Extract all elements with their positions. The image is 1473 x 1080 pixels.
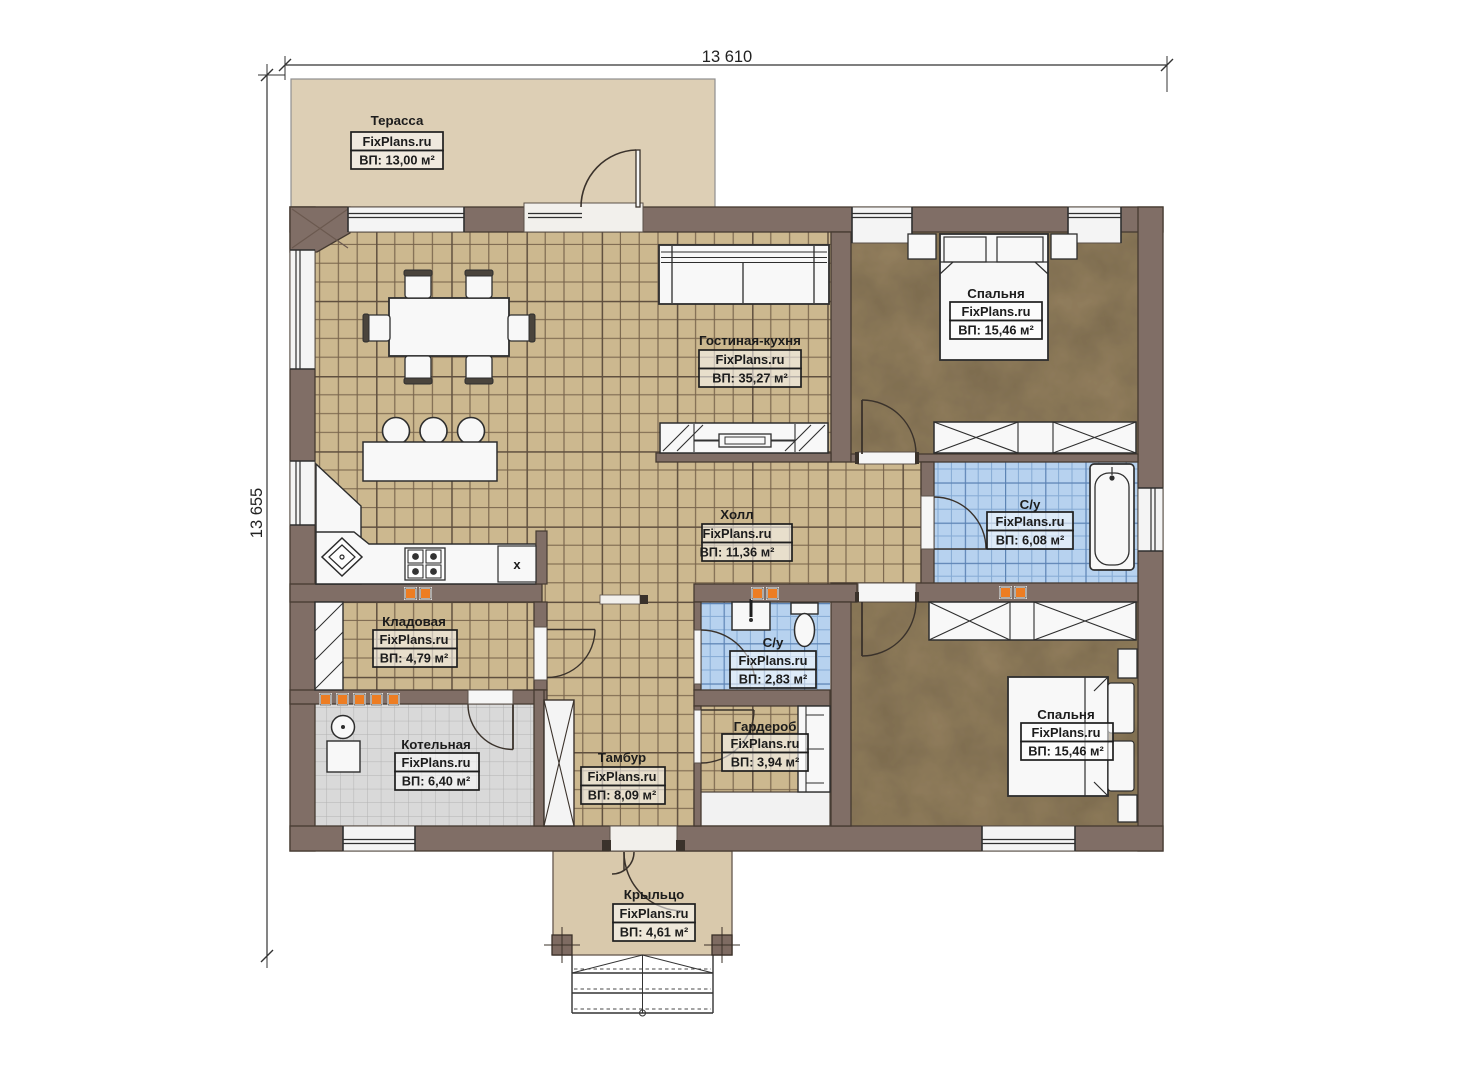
svg-text:FixPlans.ru: FixPlans.ru <box>588 769 657 784</box>
svg-text:FixPlans.ru: FixPlans.ru <box>363 134 432 149</box>
svg-text:FixPlans.ru: FixPlans.ru <box>703 526 772 541</box>
svg-text:ВП: 6,08 м²: ВП: 6,08 м² <box>996 533 1064 548</box>
svg-text:FixPlans.ru: FixPlans.ru <box>739 653 808 668</box>
svg-text:13 610: 13 610 <box>702 48 752 66</box>
svg-text:Холл: Холл <box>720 507 753 522</box>
svg-text:Кладовая: Кладовая <box>382 614 446 629</box>
svg-text:ВП: 13,00 м²: ВП: 13,00 м² <box>359 153 435 168</box>
svg-text:Гостиная-кухня: Гостиная-кухня <box>699 333 801 348</box>
svg-text:ВП: 2,83 м²: ВП: 2,83 м² <box>739 672 807 687</box>
svg-text:x: x <box>513 557 521 572</box>
svg-text:ВП: 35,27 м²: ВП: 35,27 м² <box>712 371 788 386</box>
svg-text:FixPlans.ru: FixPlans.ru <box>731 736 800 751</box>
svg-text:Спальня: Спальня <box>1037 707 1094 722</box>
svg-text:ВП: 3,94 м²: ВП: 3,94 м² <box>731 755 799 770</box>
svg-text:13 655: 13 655 <box>248 488 266 538</box>
svg-text:Гардероб: Гардероб <box>734 719 797 734</box>
svg-text:FixPlans.ru: FixPlans.ru <box>402 755 471 770</box>
svg-text:Котельная: Котельная <box>401 737 471 752</box>
svg-text:Тамбур: Тамбур <box>598 750 646 765</box>
svg-text:ВП: 4,79 м²: ВП: 4,79 м² <box>380 651 448 666</box>
svg-text:FixPlans.ru: FixPlans.ru <box>996 514 1065 529</box>
svg-text:FixPlans.ru: FixPlans.ru <box>962 304 1031 319</box>
svg-text:С/у: С/у <box>1020 497 1041 512</box>
svg-text:FixPlans.ru: FixPlans.ru <box>716 352 785 367</box>
svg-text:FixPlans.ru: FixPlans.ru <box>1032 725 1101 740</box>
svg-text:ВП: 8,09 м²: ВП: 8,09 м² <box>588 788 656 803</box>
svg-text:ВП: 15,46 м²: ВП: 15,46 м² <box>1028 744 1104 759</box>
svg-text:ВП: 15,46 м²: ВП: 15,46 м² <box>958 323 1034 338</box>
svg-text:ВП: 4,61 м²: ВП: 4,61 м² <box>620 925 688 940</box>
svg-text:Спальня: Спальня <box>967 286 1024 301</box>
svg-text:ВП: 11,36 м²: ВП: 11,36 м² <box>700 545 775 560</box>
svg-text:ВП: 6,40 м²: ВП: 6,40 м² <box>402 774 470 789</box>
svg-text:Крыльцо: Крыльцо <box>624 887 685 902</box>
svg-text:FixPlans.ru: FixPlans.ru <box>380 632 449 647</box>
svg-text:С/у: С/у <box>763 635 784 650</box>
svg-text:FixPlans.ru: FixPlans.ru <box>620 906 689 921</box>
svg-text:Терасса: Терасса <box>371 113 424 128</box>
